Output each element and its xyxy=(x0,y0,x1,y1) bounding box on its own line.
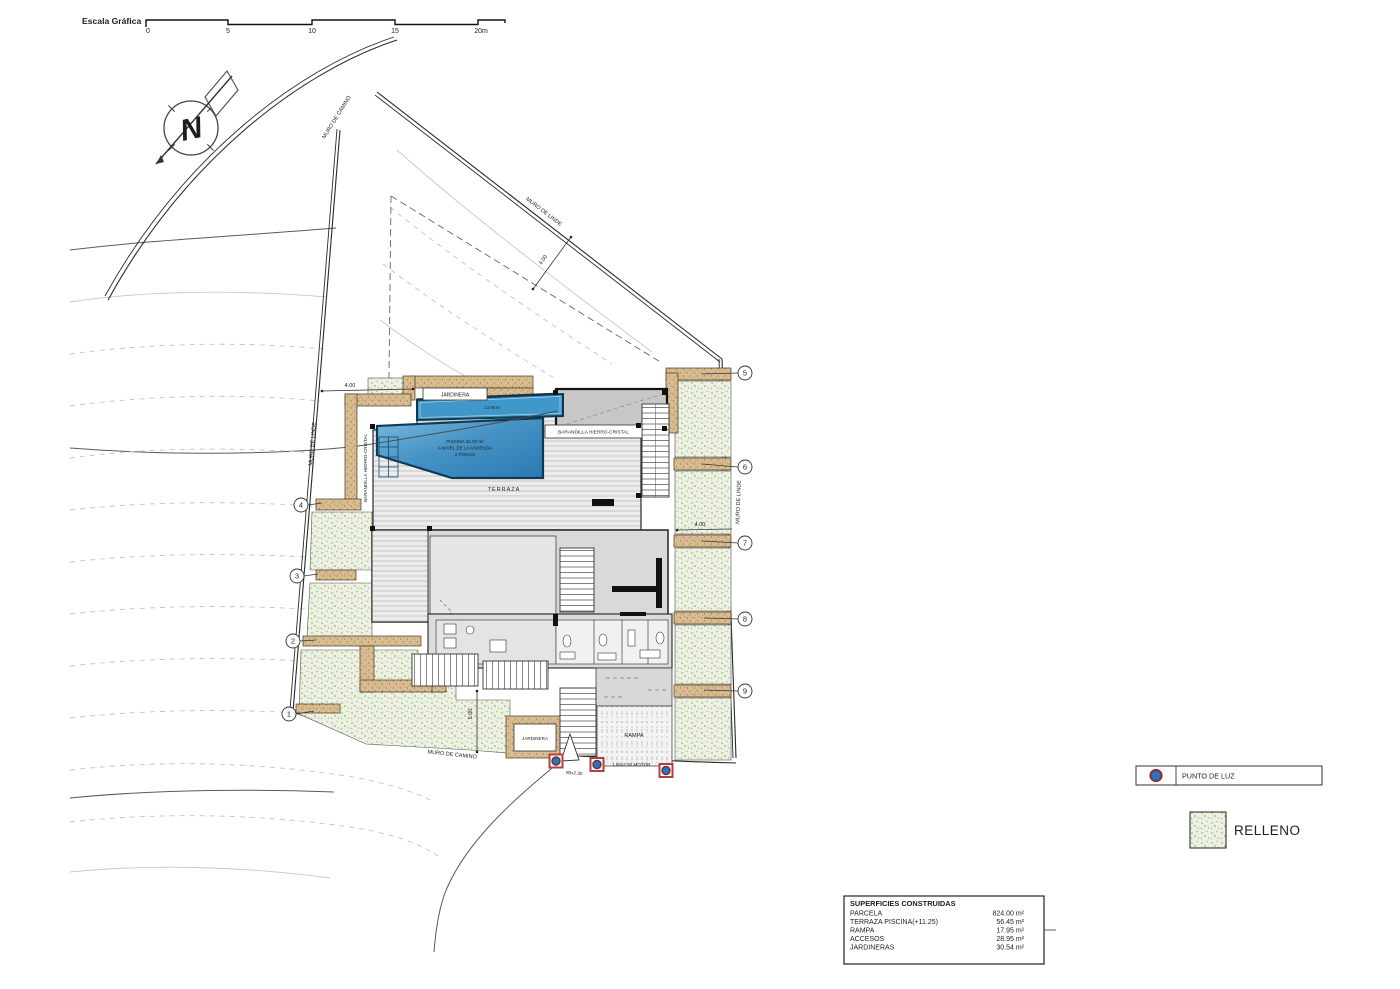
muro-linde-top-label: MURO DE LINDE xyxy=(524,197,563,229)
scale-tick-5: 5 xyxy=(226,28,230,35)
jardinera-bottom-label: JARDINERA xyxy=(522,736,549,741)
patio xyxy=(596,668,672,706)
rampa-label: RAMPA xyxy=(624,733,643,739)
pool-level-label: A NIVEL DE LA VIVIENDA xyxy=(438,446,493,451)
areas-table-title: SUPERFICIES CONSTRUIDAS xyxy=(850,899,956,908)
punto-de-luz-label: PUNTO DE LUZ xyxy=(1182,772,1235,781)
dim-bottom: 5.00 xyxy=(468,709,474,720)
dim-right: 4.00 xyxy=(695,522,706,528)
gate-motor-label: 1.80x3.50 MOTOR xyxy=(612,762,651,767)
table-row-label: JARDINERAS xyxy=(850,945,895,952)
pool-edge-label: 13.06 m xyxy=(484,405,500,410)
site-plan-canvas: Escala Gráfica 0 5 10 15 20m N xyxy=(0,0,1400,989)
muro-linde-right-label: MURO DE LINDE xyxy=(735,480,743,524)
relleno-label: RELLENO xyxy=(1234,823,1301,838)
svg-text:8: 8 xyxy=(743,615,747,624)
svg-text:6: 6 xyxy=(743,463,747,472)
table-row-value: 30.54 m² xyxy=(996,945,1024,952)
muro-linde-left-label: MURO DE LINDE xyxy=(308,422,318,466)
scale-bar-line xyxy=(146,20,505,27)
light-point-marker xyxy=(660,764,673,777)
barandilla-right-label: BARANDILLA HIERRO-CRISTAL xyxy=(558,430,629,436)
gate-small-label: 80x2.30 xyxy=(566,770,583,776)
pool-focos-label: 2 FOCOS xyxy=(455,452,475,457)
svg-text:4: 4 xyxy=(299,501,303,510)
svg-text:7: 7 xyxy=(743,539,747,548)
scale-tick-10: 10 xyxy=(308,28,316,35)
svg-text:5: 5 xyxy=(743,369,747,378)
muro-camino-top-label: MURO DE CAMINO xyxy=(321,94,353,140)
table-row-label: ACCESOS xyxy=(850,936,885,943)
setback-lines xyxy=(389,196,662,378)
relleno-swatch xyxy=(1190,812,1226,848)
svg-text:2: 2 xyxy=(291,637,295,646)
pool-area-label: PISCINA 32.00 m² xyxy=(446,439,484,444)
road-curve-top xyxy=(108,40,397,300)
punto-de-luz-icon xyxy=(1151,770,1162,781)
scale-tick-20m: 20m xyxy=(474,28,488,35)
table-row-label: PARCELA xyxy=(850,911,882,918)
ramp: RAMPA xyxy=(597,706,672,766)
legend: PUNTO DE LUZ RELLENO xyxy=(1136,766,1322,848)
table-row-label: RAMPA xyxy=(850,928,875,935)
dim-top-left: 4.00 xyxy=(345,383,356,389)
light-point-marker xyxy=(591,758,604,771)
north-letter: N xyxy=(177,111,206,148)
muro-camino-bottom-label: MURO DE CAMINO xyxy=(427,749,478,760)
dim-top-right: 4.00 xyxy=(538,254,549,266)
scale-tick-15: 15 xyxy=(391,28,399,35)
terraza-label: TERRAZA xyxy=(488,487,521,493)
table-row-value: 17.95 m² xyxy=(996,928,1024,935)
svg-text:9: 9 xyxy=(743,687,747,696)
light-point-marker xyxy=(550,755,563,768)
scale-bar: Escala Gráfica 0 5 10 15 20m xyxy=(82,16,505,35)
barandilla-left-label: BARANDILLA HIERRO-CRISTAL xyxy=(363,434,368,503)
table-row-value: 56.45 m² xyxy=(996,919,1024,926)
legend-relleno: RELLENO xyxy=(1190,812,1301,848)
table-row-value: 28.95 m² xyxy=(996,936,1024,943)
legend-punto-de-luz: PUNTO DE LUZ xyxy=(1136,766,1322,785)
jardinera-top-label: JARDINERA xyxy=(441,393,470,399)
svg-text:1: 1 xyxy=(287,710,291,719)
table-row-label: TERRAZA PISCINA(+11.25) xyxy=(850,919,938,926)
areas-table: SUPERFICIES CONSTRUIDAS PARCELA 824.00 m… xyxy=(844,896,1056,964)
interior-stair xyxy=(560,548,594,612)
terrace-side-stairs xyxy=(642,404,669,497)
svg-text:3: 3 xyxy=(295,572,299,581)
table-row-value: 824.00 m² xyxy=(992,911,1024,918)
north-arrow: N xyxy=(156,71,238,164)
scale-bar-title: Escala Gráfica xyxy=(82,16,141,26)
linde-top-line xyxy=(377,92,722,359)
scale-tick-0: 0 xyxy=(146,28,150,35)
